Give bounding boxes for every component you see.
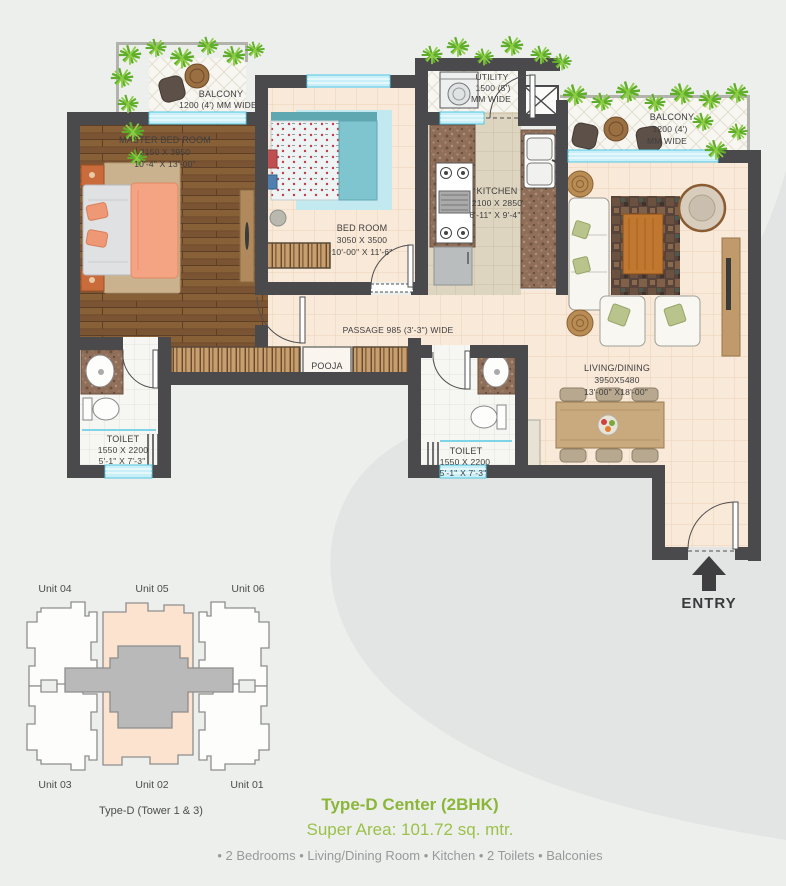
kitchen-dim-ft: 6'-11" X 9'-4" [469, 210, 520, 220]
unit-03-label: Unit 03 [38, 779, 71, 791]
unit-05-label: Unit 05 [135, 583, 168, 595]
toilet-right-dim-mm: 1550 X 2200 [440, 457, 490, 467]
toilet-left-dim-mm: 1550 X 2200 [98, 445, 148, 455]
tv-icon [726, 258, 731, 310]
side-table [567, 171, 593, 197]
bed-headboard [271, 112, 377, 121]
kitchen-dim-mm: 2100 X 2850 [472, 198, 522, 208]
kitchen-label: KITCHEN [477, 186, 518, 196]
footer: Type-D Center (2BHK) Super Area: 101.72 … [34, 795, 786, 863]
entry-label: ENTRY [681, 595, 736, 612]
balcony-right-dim: 1200 (4') [652, 124, 687, 134]
features-line: • 2 Bedrooms • Living/Dining Room • Kitc… [34, 848, 786, 863]
balcony-right-label: BALCONY [650, 112, 694, 122]
toilet-left-label: TOILET [107, 434, 140, 444]
toilet-right-dim-ft: 5'-1" X 7'-3" [440, 468, 487, 478]
balcony-right-dim2: MM WIDE [647, 136, 687, 146]
pouf [571, 122, 599, 150]
hall-cabinet [527, 420, 540, 468]
master-bedroom-dim-mm: 3150 X 3950 [140, 147, 190, 157]
bedroom-dim-mm: 3050 X 3500 [337, 235, 387, 245]
utility-label: UTILITY [475, 72, 508, 82]
living-dining-dim-ft: 13'-00" X18'-00" [584, 387, 648, 397]
unit-06-label: Unit 06 [231, 583, 264, 595]
tower-diagram: Unit 04 Unit 05 Unit 06 Unit 03 Unit 02 … [27, 583, 269, 817]
floorplan-canvas: BALCONY 1200 (4') MM WIDE MASTER BED ROO… [0, 0, 786, 881]
bedroom-chair [270, 210, 286, 226]
master-bedroom-dim-ft: 10'-4" X 13'-00" [134, 159, 196, 169]
fridge-icon [434, 247, 472, 285]
window-icon [307, 75, 390, 87]
unit-01-label: Unit 01 [230, 779, 263, 791]
window-icon [149, 112, 246, 124]
bed-throw [339, 121, 377, 200]
balcony-table [604, 117, 628, 141]
balcony-left-dim: 1200 (4') MM WIDE [179, 100, 257, 110]
living-dining-dim-mm: 3950X5480 [594, 375, 639, 385]
floorplan-page: BALCONY 1200 (4') MM WIDE MASTER BED ROO… [0, 0, 786, 881]
living-dining-label: LIVING/DINING [584, 363, 650, 373]
tower-unit-01 [199, 684, 269, 770]
sofa-pillow [573, 256, 591, 274]
pooja-label: POOJA [311, 361, 343, 371]
unit-02-label: Unit 02 [135, 779, 168, 791]
wardrobe-bedroom [267, 243, 330, 268]
toilet-left-dim-ft: 5'-1" X 7'-3" [99, 456, 146, 466]
sofa [569, 198, 609, 310]
bedroom-dim-ft: 10'-00" X 11'-6" [332, 247, 393, 257]
bedroom-label: BED ROOM [337, 223, 388, 233]
bed-quilt [271, 121, 339, 200]
balcony-table [185, 64, 209, 88]
balcony-left-label: BALCONY [199, 89, 243, 99]
utility-dim: 1500 (5') [475, 83, 510, 93]
window-icon [105, 465, 152, 478]
passage-label: PASSAGE 985 (3'-3") WIDE [343, 325, 454, 335]
window-icon [440, 112, 484, 124]
toilet-right-label: TOILET [450, 446, 483, 456]
super-area: Super Area: 101.72 sq. mtr. [34, 820, 786, 840]
tower-unit-03 [27, 684, 97, 770]
utility-dim2: MM WIDE [471, 94, 511, 104]
unit-04-label: Unit 04 [38, 583, 71, 595]
wc-icon [471, 406, 497, 428]
side-table [567, 310, 593, 336]
plan-title: Type-D Center (2BHK) [34, 795, 786, 815]
master-bedroom-label: MASTER BED ROOM [119, 135, 211, 145]
pillow [86, 229, 108, 247]
window-icon [568, 150, 718, 162]
wc-icon [93, 398, 119, 420]
